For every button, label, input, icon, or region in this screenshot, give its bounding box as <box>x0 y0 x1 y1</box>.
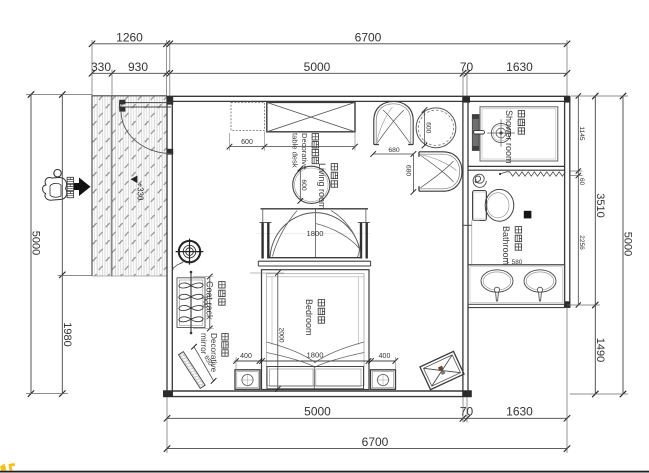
svg-text:1490: 1490 <box>594 338 606 362</box>
svg-text:5000: 5000 <box>622 232 634 256</box>
svg-text:1800: 1800 <box>307 351 324 360</box>
svg-text:600: 600 <box>241 139 253 146</box>
svg-text:1800: 1800 <box>307 229 324 238</box>
svg-text:1980: 1980 <box>61 322 73 346</box>
svg-text:1630: 1630 <box>506 60 533 74</box>
svg-text:600: 600 <box>300 179 307 191</box>
svg-text:2256: 2256 <box>578 235 585 250</box>
svg-text:680: 680 <box>405 165 412 177</box>
svg-text:Living room: Living room <box>317 163 327 210</box>
svg-text:Coat rack: Coat rack <box>205 281 215 320</box>
svg-text:Bathroom: Bathroom <box>501 226 511 265</box>
svg-text:1630: 1630 <box>506 405 533 419</box>
svg-text:Decorative: Decorative <box>300 133 309 169</box>
svg-text:2000: 2000 <box>278 327 285 342</box>
svg-text:6700: 6700 <box>355 30 382 44</box>
svg-text:Shower room: Shower room <box>504 110 514 164</box>
svg-text:Decorative: Decorative <box>209 333 218 373</box>
svg-text:Bedroom: Bedroom <box>304 299 314 336</box>
svg-text:5000: 5000 <box>30 231 42 255</box>
svg-text:1145: 1145 <box>578 126 585 141</box>
svg-text:680: 680 <box>388 147 400 154</box>
svg-text:600: 600 <box>425 122 432 134</box>
svg-text:930: 930 <box>128 60 148 74</box>
svg-text:1260: 1260 <box>116 30 143 44</box>
svg-text:330: 330 <box>91 60 111 74</box>
svg-text:5000: 5000 <box>304 60 331 74</box>
svg-text:60: 60 <box>578 178 585 186</box>
svg-text:mirror: mirror <box>199 333 208 355</box>
svg-text:+330: +330 <box>135 183 144 201</box>
svg-text:400: 400 <box>379 353 391 360</box>
svg-text:table desk: table desk <box>290 133 299 168</box>
svg-text:5000: 5000 <box>304 405 331 419</box>
svg-text:6700: 6700 <box>362 435 389 449</box>
svg-text:400: 400 <box>240 353 252 360</box>
svg-text:3510: 3510 <box>594 193 606 217</box>
